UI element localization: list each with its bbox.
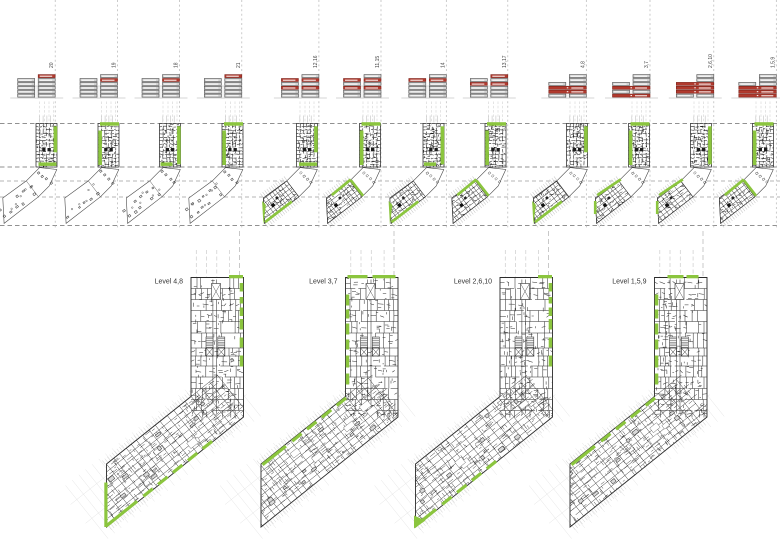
svg-text:20: 20 <box>49 62 55 68</box>
svg-text:3,7: 3,7 <box>644 61 650 68</box>
svg-text:13,17: 13,17 <box>502 55 508 68</box>
svg-text:18: 18 <box>174 62 180 68</box>
svg-text:1,5,9: 1,5,9 <box>770 57 776 68</box>
svg-text:21: 21 <box>236 62 242 68</box>
svg-text:14: 14 <box>440 62 446 68</box>
svg-text:Level 2,6,10: Level 2,6,10 <box>454 279 492 286</box>
svg-text:11,15: 11,15 <box>375 56 381 68</box>
svg-text:12,16: 12,16 <box>313 55 319 68</box>
svg-text:Level 4,8: Level 4,8 <box>155 279 184 286</box>
svg-text:Level 1,5,9: Level 1,5,9 <box>612 279 646 286</box>
svg-text:Level 3,7: Level 3,7 <box>309 279 338 286</box>
svg-text:2,6,10: 2,6,10 <box>708 54 714 68</box>
svg-text:4,8: 4,8 <box>580 61 586 68</box>
svg-text:19: 19 <box>112 62 118 68</box>
